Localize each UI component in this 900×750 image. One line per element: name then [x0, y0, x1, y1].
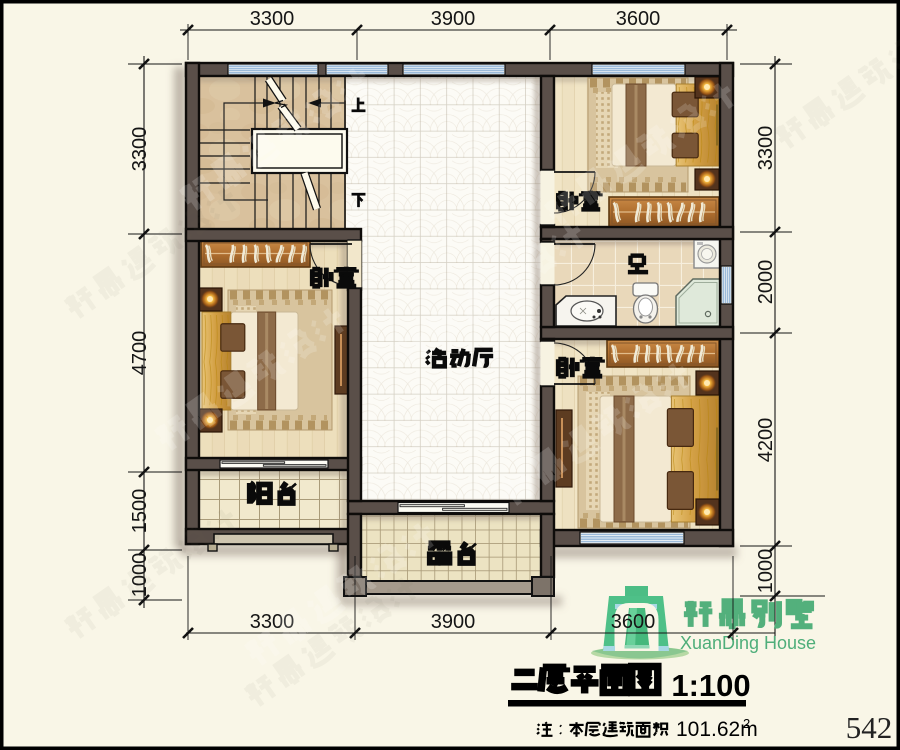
svg-text:3300: 3300 — [129, 127, 151, 172]
svg-text:3300: 3300 — [250, 8, 295, 30]
svg-text:1500: 1500 — [129, 489, 151, 534]
svg-text:3600: 3600 — [611, 611, 656, 633]
svg-text:3300: 3300 — [755, 126, 777, 171]
svg-text:3600: 3600 — [616, 8, 661, 30]
svg-text:2000: 2000 — [755, 260, 777, 305]
svg-text:4200: 4200 — [755, 418, 777, 463]
svg-text:3900: 3900 — [431, 611, 476, 633]
svg-text:2: 2 — [743, 716, 750, 731]
svg-text:4700: 4700 — [129, 331, 151, 376]
svg-text:XuanDing House: XuanDing House — [680, 633, 816, 653]
svg-text:1:100: 1:100 — [671, 668, 750, 703]
svg-text:1000: 1000 — [755, 549, 777, 594]
svg-text:542: 542 — [846, 710, 893, 745]
svg-text:3900: 3900 — [431, 8, 476, 30]
